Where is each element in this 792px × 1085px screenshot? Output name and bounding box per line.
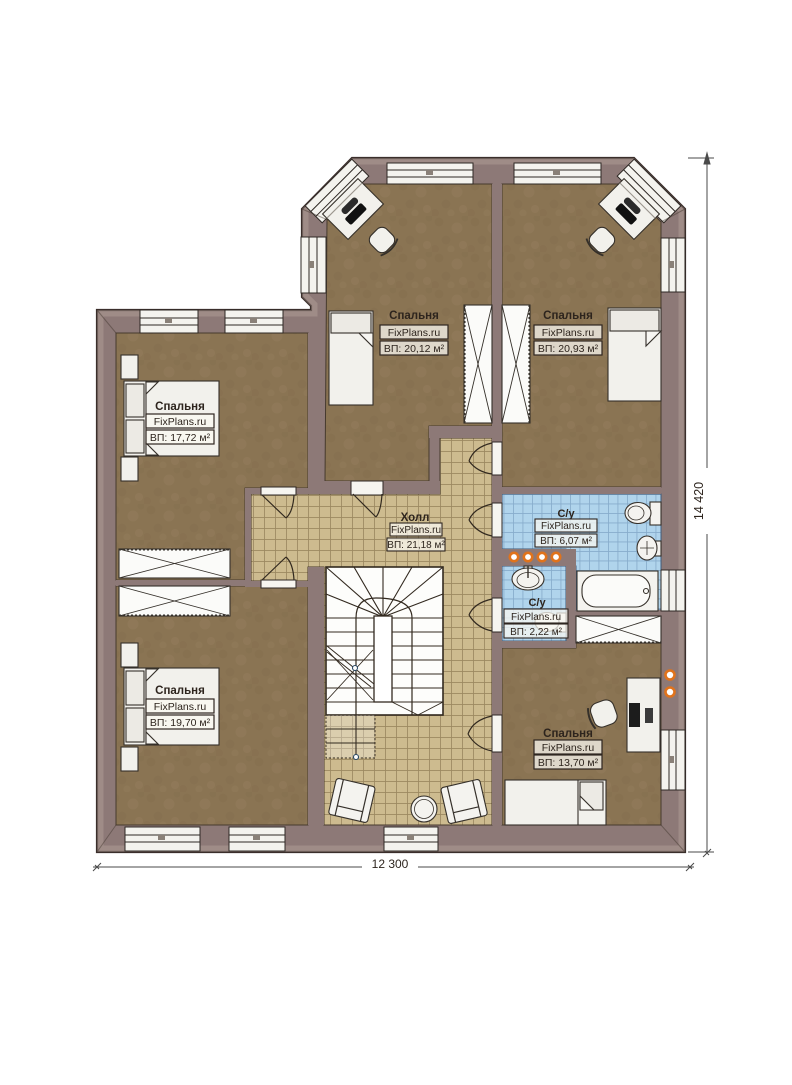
svg-text:Спальня: Спальня [543, 728, 593, 740]
svg-text:FixPlans.ru: FixPlans.ru [154, 416, 207, 428]
svg-text:ВП: 17,72 м²: ВП: 17,72 м² [150, 432, 211, 444]
svg-text:ВП: 20,12 м²: ВП: 20,12 м² [384, 343, 445, 355]
svg-text:FixPlans.ru: FixPlans.ru [391, 525, 441, 536]
svg-text:FixPlans.ru: FixPlans.ru [154, 701, 207, 713]
svg-text:Спальня: Спальня [155, 685, 205, 697]
svg-text:FixPlans.ru: FixPlans.ru [541, 521, 591, 532]
svg-text:С/у: С/у [528, 597, 546, 609]
svg-text:ВП: 2,22 м²: ВП: 2,22 м² [510, 627, 563, 638]
svg-text:ВП: 21,18 м²: ВП: 21,18 м² [387, 540, 445, 551]
svg-text:ВП: 13,70 м²: ВП: 13,70 м² [538, 757, 599, 769]
svg-text:Спальня: Спальня [155, 401, 205, 413]
svg-text:Спальня: Спальня [543, 310, 593, 322]
svg-text:Спальня: Спальня [389, 310, 439, 322]
svg-text:ВП: 6,07 м²: ВП: 6,07 м² [540, 536, 593, 547]
svg-text:С/у: С/у [557, 508, 575, 520]
svg-text:FixPlans.ru: FixPlans.ru [511, 612, 561, 623]
svg-text:FixPlans.ru: FixPlans.ru [388, 327, 441, 339]
svg-text:ВП: 19,70 м²: ВП: 19,70 м² [150, 717, 211, 729]
svg-text:FixPlans.ru: FixPlans.ru [542, 742, 595, 754]
svg-text:FixPlans.ru: FixPlans.ru [542, 327, 595, 339]
svg-text:Холл: Холл [401, 512, 430, 524]
svg-text:12 300: 12 300 [372, 857, 409, 871]
svg-text:ВП: 20,93 м²: ВП: 20,93 м² [538, 343, 599, 355]
svg-text:14 420: 14 420 [692, 482, 706, 520]
